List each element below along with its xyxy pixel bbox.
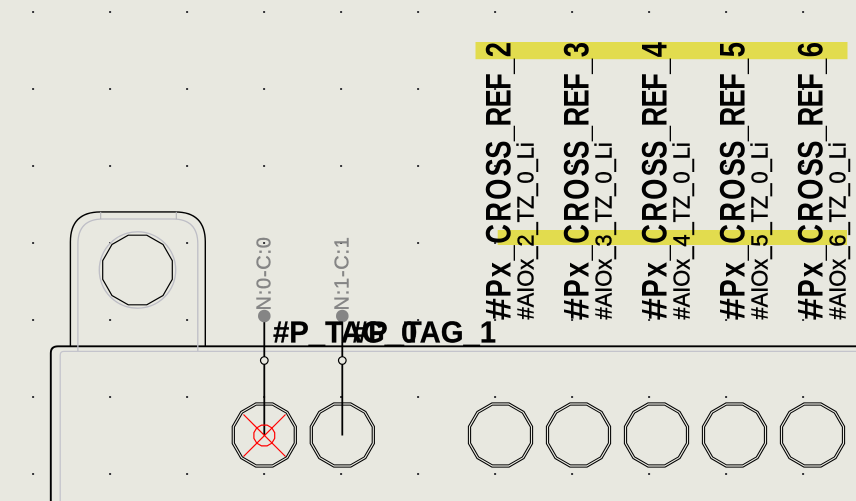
svg-text:#P_TAG_1: #P_TAG_1: [352, 316, 496, 350]
svg-text:N:0-C:0: N:0-C:0: [253, 236, 275, 310]
svg-text:N:1-C:1: N:1-C:1: [331, 236, 353, 310]
svg-text:#AIOx_4_TZ_0_Li: #AIOx_4_TZ_0_Li: [669, 142, 695, 319]
svg-text:#AIOx_3_TZ_0_Li: #AIOx_3_TZ_0_Li: [591, 142, 617, 319]
svg-text:#AIOx_5_TZ_0_Li: #AIOx_5_TZ_0_Li: [747, 142, 773, 319]
svg-text:#AIOx_6_TZ_0_Li: #AIOx_6_TZ_0_Li: [825, 142, 851, 319]
svg-text:#AIOx_2_TZ_0_Li: #AIOx_2_TZ_0_Li: [513, 142, 539, 319]
